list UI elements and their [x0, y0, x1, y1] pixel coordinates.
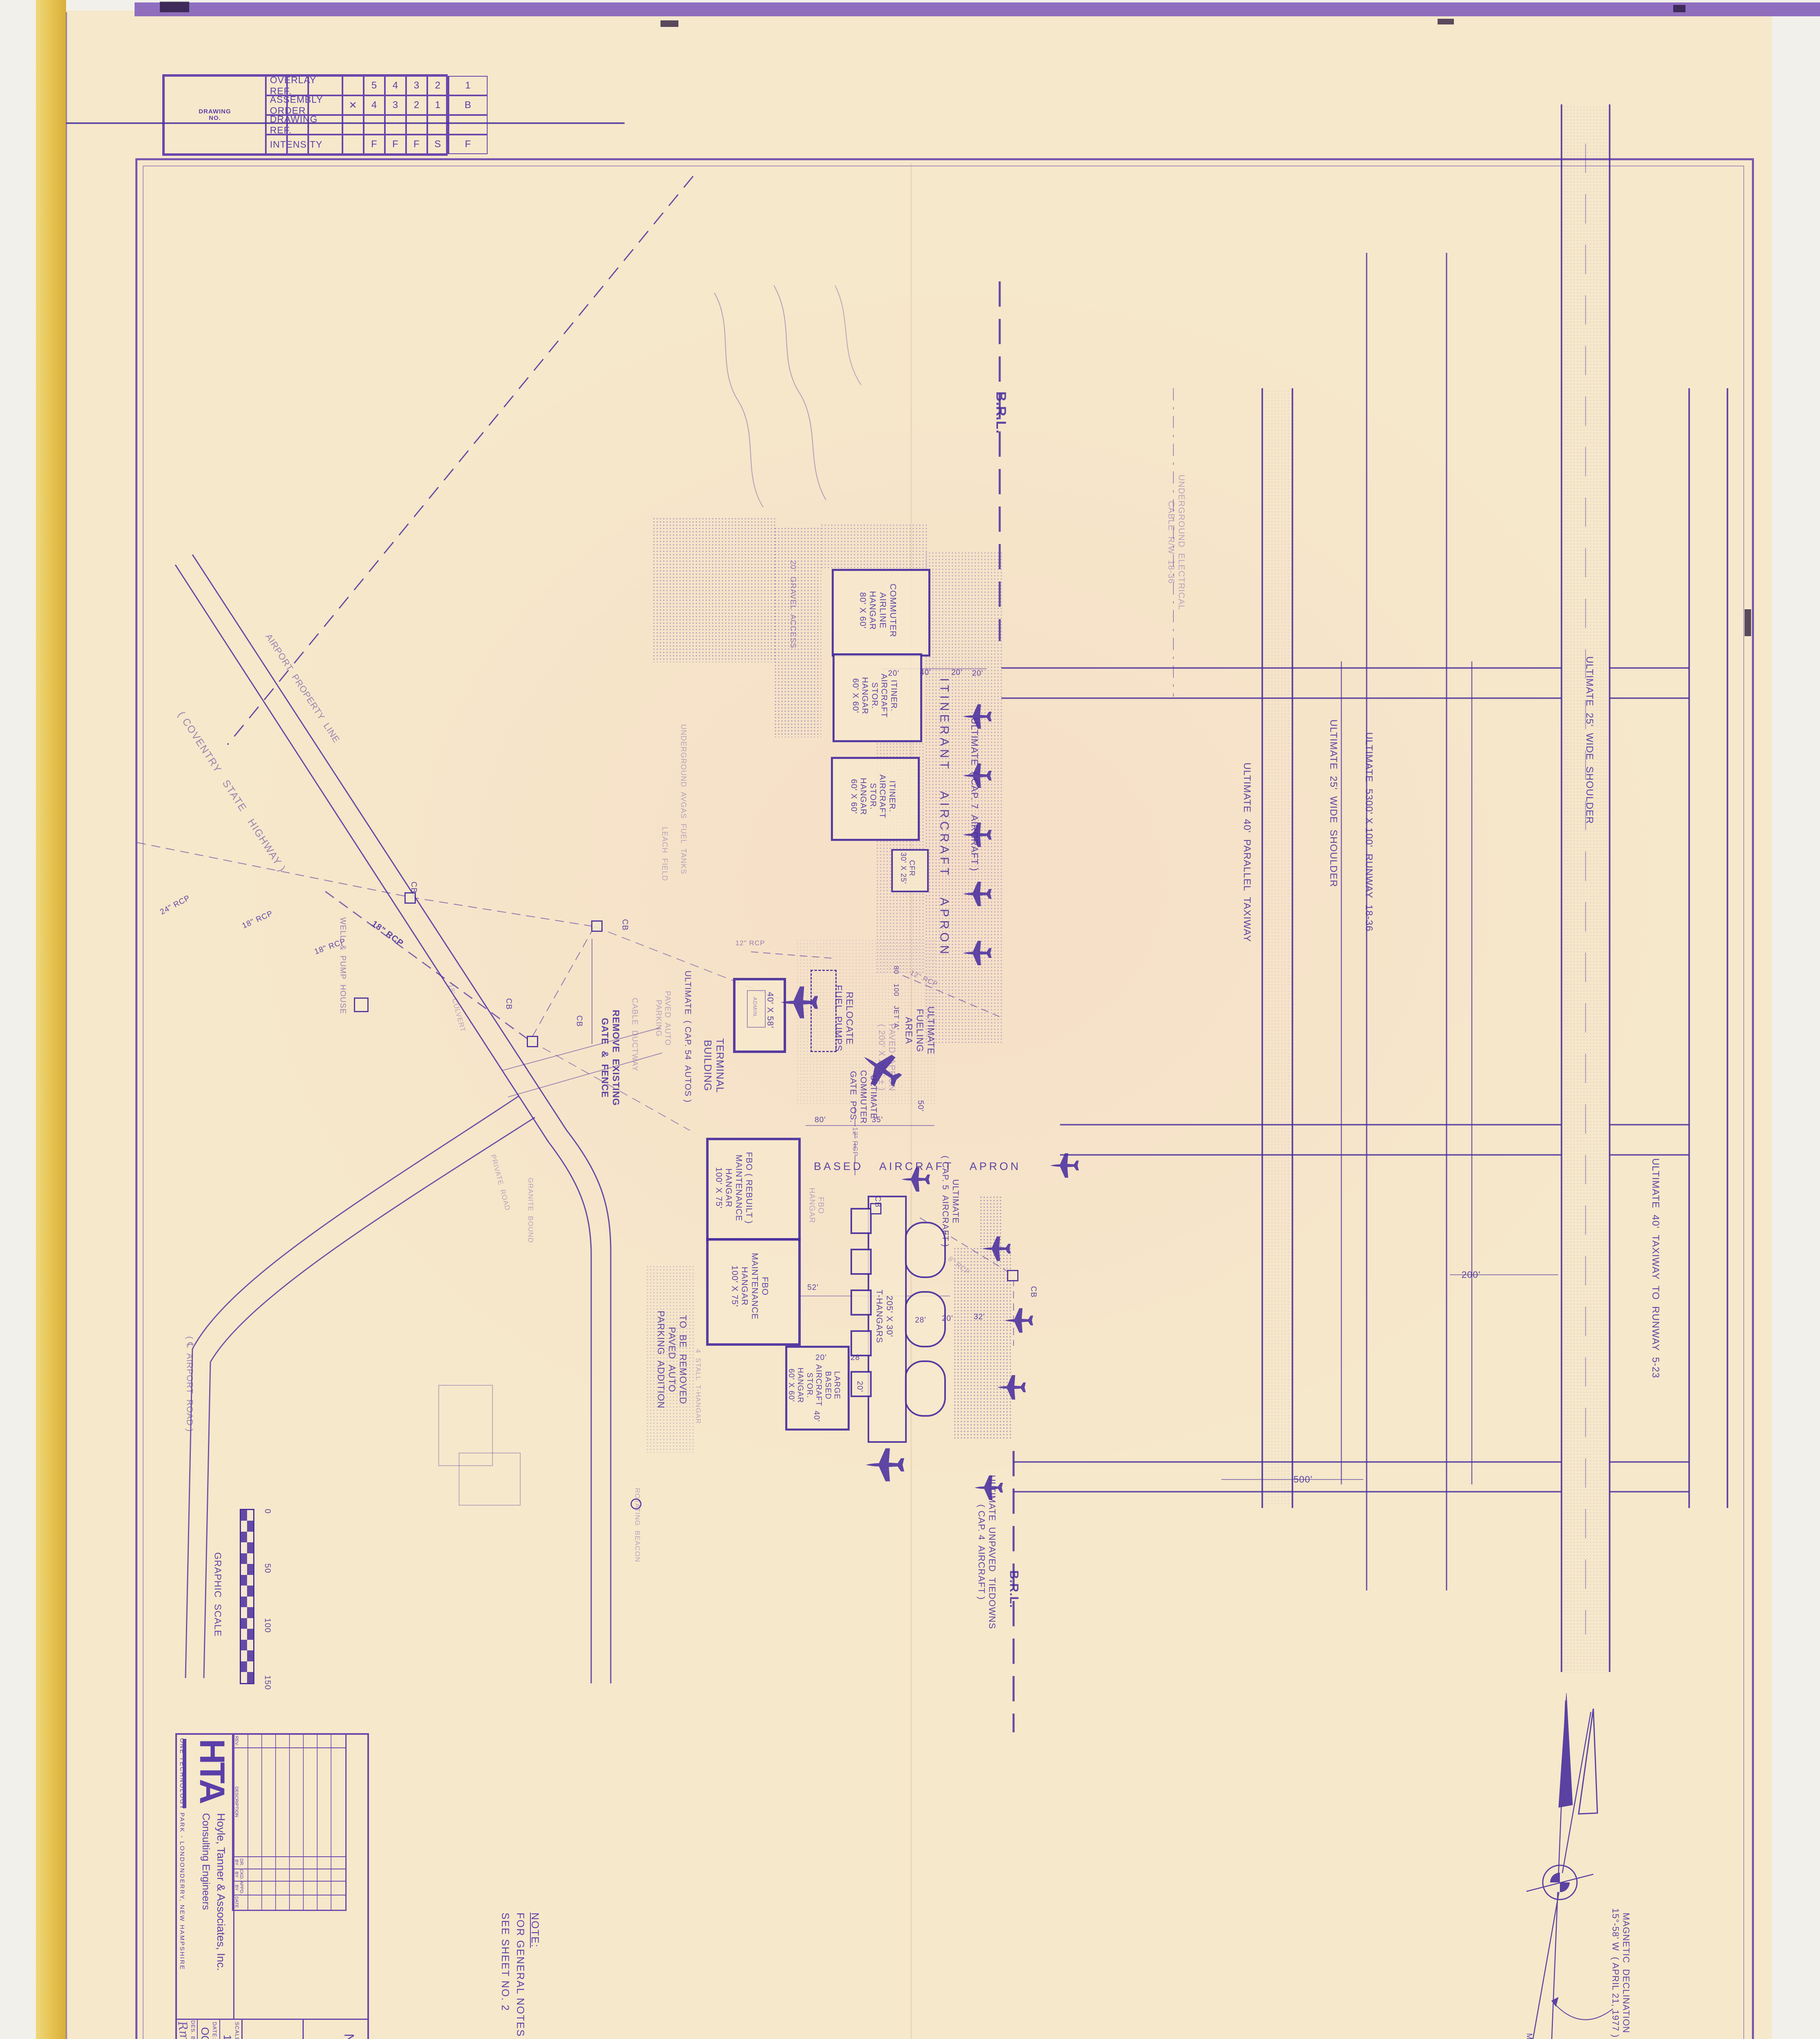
dim-40-a: 40' — [920, 668, 931, 677]
label-itinerant-hangar-1: ITINER. AIRCRAFT STOR. HANGAR 60' X 60' — [850, 674, 898, 718]
label-cb-4: CB — [620, 919, 629, 931]
scan-mark — [160, 2, 189, 12]
graphic-scale-tick: 0 — [262, 1509, 272, 1514]
label-cb-2: CB — [504, 998, 513, 1010]
label-t-hangars-205: 205' X 30' T-HANGARS — [874, 1289, 894, 1343]
revision-row-line — [261, 1734, 262, 1910]
dim-200: 200' — [1462, 1269, 1481, 1280]
label-paved-apron: PAVED APRON ( 200' X 205' ± ) — [876, 1024, 897, 1091]
label-underground-electrical-cable: UNDERGROUND ELECTRICAL CABLE R/W 18-36 — [1166, 475, 1186, 610]
label-ultimate-cap-7: ULTIMATE ( CAP. 7 AIRCRAFT ) — [969, 717, 980, 871]
revision-header: DR. BY — [234, 1856, 244, 1869]
graphic-scale-tick: 150 — [262, 1675, 272, 1690]
title-block-rule — [197, 2019, 198, 2039]
label-cb-3: CB — [574, 1015, 583, 1027]
dim-20-f: 20' — [942, 1314, 953, 1323]
label-leach-field: LEACH FIELD — [660, 827, 669, 881]
dim-20-e: 20' — [855, 1381, 864, 1392]
label-cfr-building: CFR 30' X 25' — [899, 852, 916, 884]
dim-28-a: 28' — [850, 1353, 862, 1362]
revision-header: DESCRIPTION — [234, 1747, 239, 1856]
label-cb-1: CB — [409, 882, 418, 893]
label-ultimate-shoulder-1: ULTIMATE 25' WIDE SHOULDER — [1327, 719, 1339, 887]
revision-table: REV.DESCRIPTIONDR. BYCKD. BYAPPD. BYDATE — [232, 1733, 347, 1911]
scale-bar-column — [241, 1510, 247, 1683]
label-fbo-hangar-existing: FBO HANGAR — [807, 1188, 825, 1223]
revision-header: APPD. BY — [234, 1881, 244, 1895]
note-line: FOR GENERAL NOTES AND LEGEND — [513, 1913, 528, 2039]
revision-row-line — [317, 1734, 318, 1910]
label-remove-existing-gate: REMOVE EXISTING GATE & FENCE — [599, 1010, 621, 1106]
label-ultimate-taxiway-5-23: ULTIMATE 40' TAXIWAY TO RUNWAY 5-23 — [1650, 1158, 1661, 1378]
label-12-rcp-1: 12" RCP — [851, 1127, 859, 1157]
true-north-arrowhead — [1559, 1693, 1573, 1807]
revision-row-line — [303, 1734, 304, 1910]
label-ultimate-runway: ULTIMATE 5300' X 100' RUNWAY 18-36 — [1363, 732, 1374, 931]
dim-500: 500' — [1294, 1474, 1313, 1485]
label-well-pump-house: WELL & PUMP HOUSE — [338, 917, 347, 1014]
revision-header: DATE — [234, 1895, 239, 1910]
label-magnetic-declination: MAGNETIC DECLINATION 15°-58' W ( APRIL 2… — [1610, 1908, 1631, 2038]
dim-28-b: 28' — [915, 1316, 926, 1325]
label-brl-bottom: B.R.L. — [1007, 1570, 1021, 1608]
label-rotating-beacon: ROTATING BEACON — [633, 1488, 641, 1563]
dim-20-a: 20' — [888, 669, 899, 678]
label-ultimate-shoulder-2: ULTIMATE 25' WIDE SHOULDER — [1584, 656, 1595, 824]
dim-50: 50' — [916, 1100, 925, 1112]
title-block: REV.DESCRIPTIONDR. BYCKD. BYAPPD. BYDATE… — [175, 1733, 369, 2039]
dim-40-b: 40' — [812, 1411, 821, 1422]
revision-row-line — [247, 1734, 248, 1910]
label-itinerant-hangar-2: ITINER. AIRCRAFT STOR. HANGAR 60' X 60' — [848, 774, 897, 818]
note-line: SEE SHEET NO. 2 — [498, 1913, 512, 2039]
date-value: OCT. 1979 — [199, 2022, 211, 2039]
label-terminal-building: TERMINAL BUILDING — [702, 1038, 726, 1093]
label-admin: ADMIN. — [752, 997, 758, 1018]
scan-mark — [660, 20, 678, 27]
revision-row-line — [331, 1734, 331, 1910]
label-ultimate-cap-54-autos: ULTIMATE ( CAP. 54 AUTOS ) — [682, 971, 693, 1103]
label-ultimate-fueling-area: ULTIMATE FUELING AREA — [903, 1006, 936, 1055]
client-line-2: COVENTRY, VERMONT — [319, 2019, 335, 2039]
date-label: DATE: — [212, 2022, 218, 2039]
label-based-aircraft-apron: BASED AIRCRAFT APRON — [814, 1160, 1021, 1173]
company-name: Hoyle, Tanner & Associates, Inc. — [214, 1813, 227, 1971]
scale-label: SCALE: — [234, 2022, 240, 2039]
dim-80: 80' — [815, 1116, 826, 1125]
company-address: ONE TECHNOLOGY PARK - LONDONDERRY, NEW H… — [179, 1738, 186, 1970]
graphic-scale-tick: 100 — [262, 1618, 272, 1633]
label-paved-auto-parking: PAVED AUTO PARKING — [654, 991, 672, 1046]
label-brl-top: B.R.L. — [993, 391, 1009, 434]
label-12-rcp-3: 12" RCP — [736, 939, 765, 947]
label-fbo-rebuilt-hangar: FBO ( REBUILT ) MAINTENANCE HANGAR 100' … — [713, 1152, 753, 1224]
note-line: NOTE: — [528, 1913, 542, 2039]
label-underground-avgas: UNDERGROUND AVGAS FUEL TANKS — [679, 724, 687, 874]
dim-35: 35' — [872, 1116, 883, 1125]
scan-mark — [1438, 19, 1454, 24]
graphic-scale-bar — [240, 1509, 254, 1684]
label-4-stall-t-hangar: 4 STALL T-HANGAR — [694, 1349, 702, 1424]
scan-mark — [1745, 609, 1751, 636]
scanned-drawing-sheet: OVERLAY REF.54321DRAWING NO.ASSEMBLY ORD… — [0, 0, 1820, 2039]
label-ultimate-unpaved-tiedowns: ULTIMATE UNPAVED TIEDOWNS ( CAP. 4 AIRCR… — [976, 1475, 997, 1629]
revision-row-line — [275, 1734, 276, 1910]
label-fbo-maintenance-hangar: FBO MAINTENANCE HANGAR 100' X 75' — [729, 1253, 769, 1320]
title-block-rule — [303, 2019, 304, 2039]
designed-by-signature: Rm — [175, 2020, 192, 2039]
label-to-be-removed-parking: TO BE REMOVED PAVED AUTO PARKING ADDITIO… — [655, 1311, 688, 1409]
label-ultimate-cap-5: ULTIMATE ( CAP. 5 AIRCRAFT ) — [940, 1156, 960, 1247]
label-commuter-airline-hangar: COMMUTER AIRLINE HANGAR 80' X 60' — [857, 584, 897, 637]
label-gravel-access: 20' GRAVEL ACCESS — [788, 560, 797, 649]
scale-bar-column — [247, 1510, 253, 1683]
label-cb-6: CB — [1029, 1286, 1038, 1298]
label-ultimate-parallel-taxiway: ULTIMATE 40' PARALLEL TAXIWAY — [1241, 763, 1252, 942]
sheet-title: TERMINAL AREA PLAN — [235, 2019, 288, 2039]
label-granite-bound: GRANITE BOUND — [526, 1178, 535, 1243]
revision-row-line — [289, 1734, 290, 1910]
label-mag: MAG. — [1524, 2033, 1533, 2039]
label-large-based-hangar: LARGE BASED AIRCRAFT STOR. HANGAR 60' X … — [786, 1364, 841, 1407]
label-airport-road: ( ℄ AIRPORT ROAD ) — [184, 1336, 194, 1432]
dim-52: 52' — [807, 1283, 819, 1292]
hta-logo: HTA — [183, 1739, 231, 1808]
revision-header: REV. — [234, 1734, 239, 1747]
magnetic-north-arrowhead — [1579, 1709, 1597, 1814]
dim-20-c: 20' — [972, 669, 983, 678]
label-relocate-fuel-pumps: RELOCATE FUEL PUMPS — [833, 985, 855, 1052]
label-fuel-grades: 80 100 JET 'A' — [892, 966, 900, 1030]
graphic-scale-tick: 50 — [262, 1564, 272, 1573]
client-line-1: NEWPORT STATE AIRPORT — [341, 2019, 357, 2039]
general-note: NOTE:FOR GENERAL NOTES AND LEGENDSEE SHE… — [497, 1913, 542, 2039]
revision-header: CKD. BY — [234, 1869, 244, 1881]
scale-value: 1" = 50' — [221, 2022, 234, 2039]
label-itinerant-aircraft-apron: ITINERANT AIRCRAFT APRON — [937, 678, 951, 958]
dim-20-b: 20' — [951, 668, 963, 677]
company-tagline: Consulting Engineers — [200, 1813, 212, 1910]
declination-leader-arc — [1552, 2001, 1613, 2020]
label-cb-5: CB — [873, 1196, 882, 1207]
scan-mark — [1673, 5, 1685, 12]
label-terminal-size: 40' X 58' — [765, 992, 775, 1028]
title-block-rule — [219, 2019, 220, 2039]
dim-20-d: 20' — [815, 1353, 827, 1362]
graphic-scale-title: GRAPHIC SCALE — [212, 1552, 223, 1637]
label-cable-ductway: CABLE DUCTWAY — [630, 998, 639, 1072]
dim-32: 32' — [974, 1313, 985, 1322]
